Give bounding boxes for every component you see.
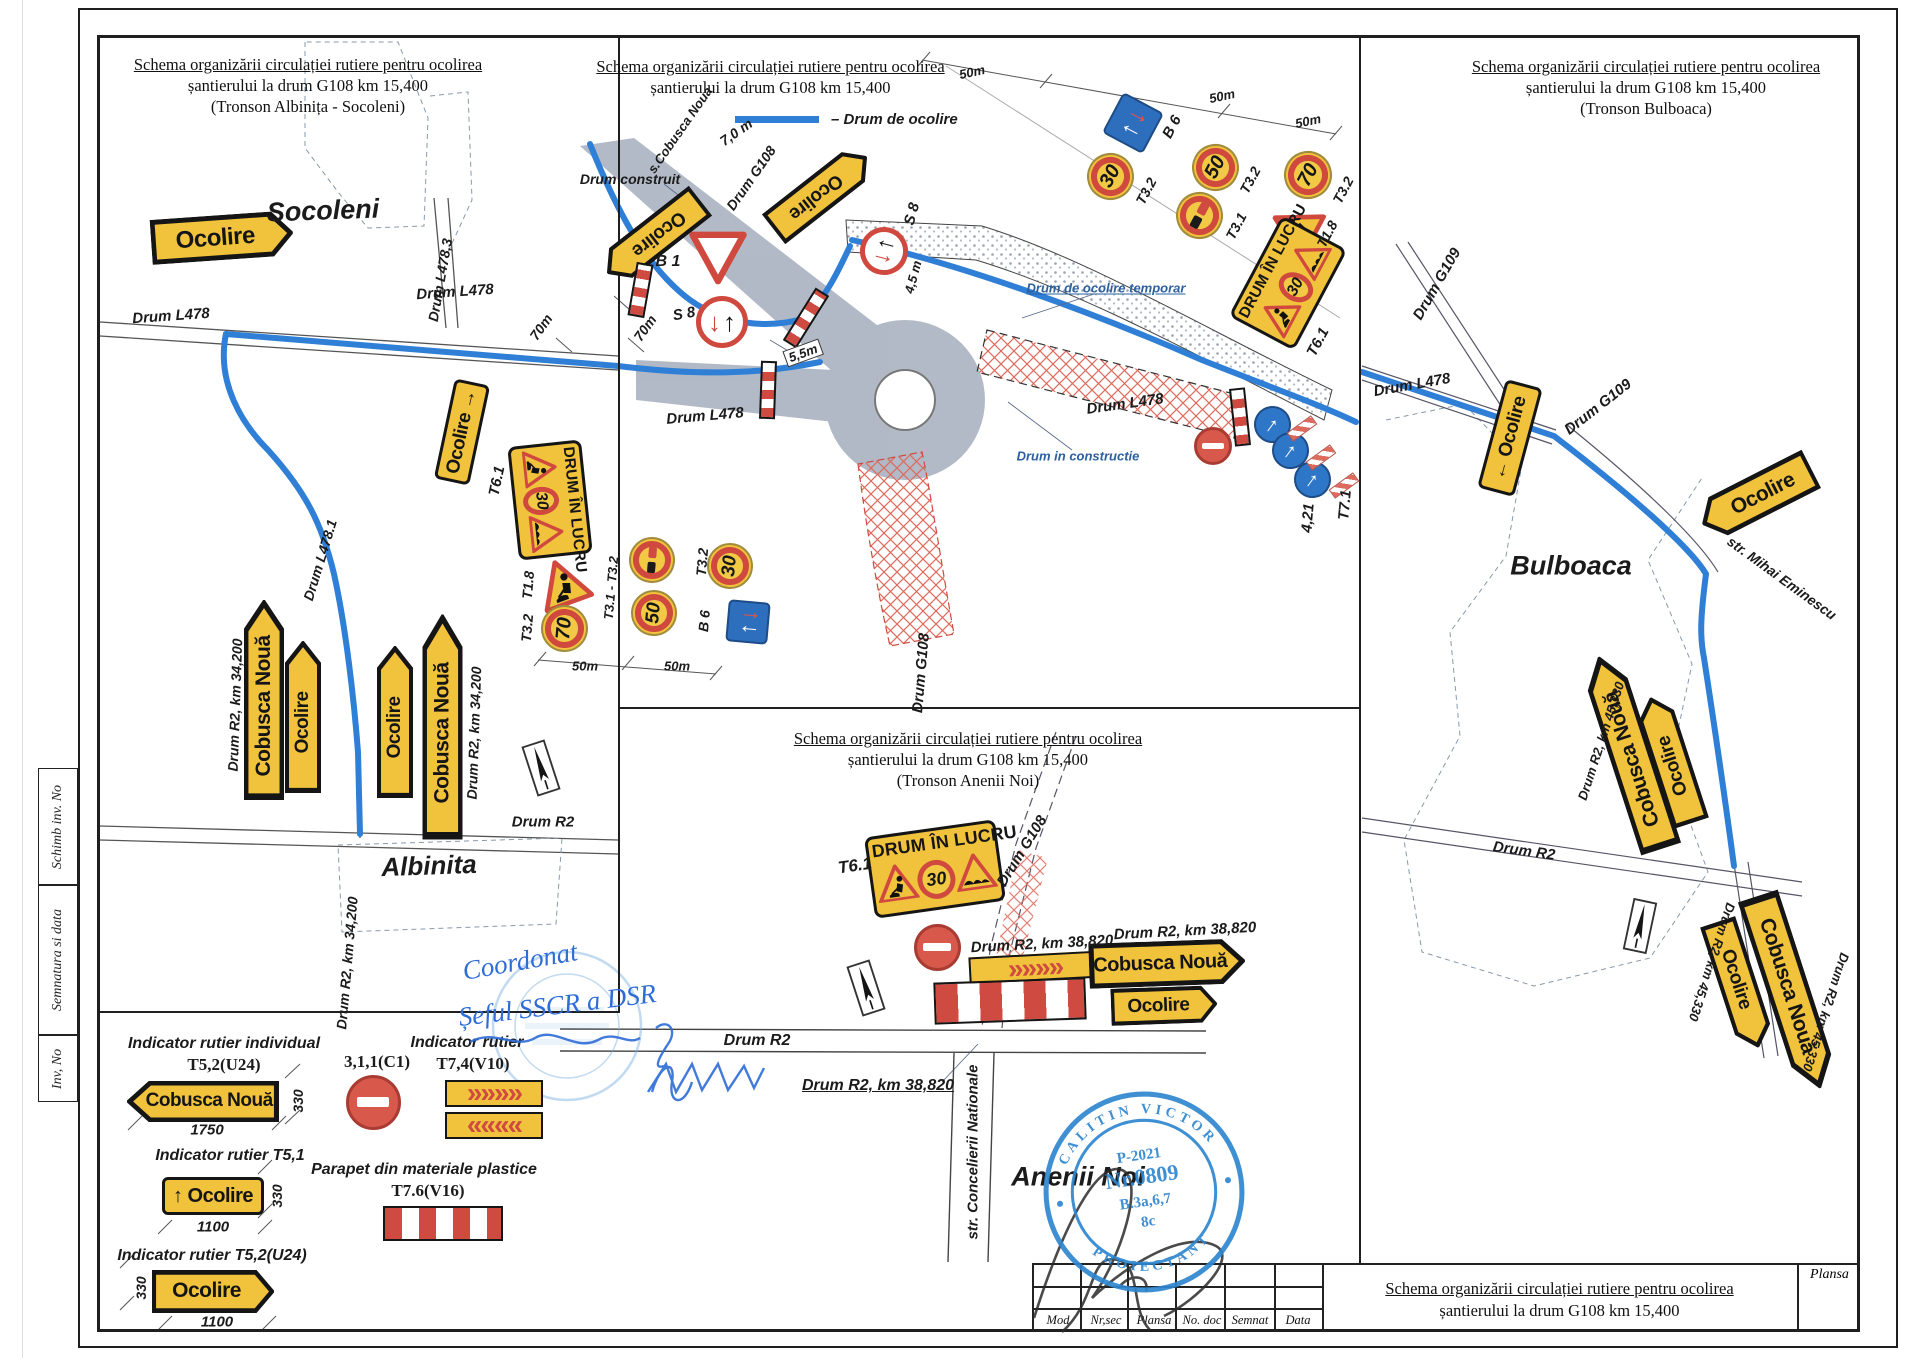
stamp-number: Nr.0809 [1104,1159,1181,1194]
signatures-layer [0,0,1920,1358]
stamp-code: B.3a,6,7 [1119,1190,1173,1213]
blue-signature [470,1024,764,1100]
drawing-sheet: Schimb inv. No Semnatura si data Inv, No… [0,0,1920,1358]
round-stamp: CALITIN VICTOR PROIECTANT P-2021 Nr.0809… [1024,1072,1263,1311]
stamp-code2: 8c [1140,1213,1157,1231]
